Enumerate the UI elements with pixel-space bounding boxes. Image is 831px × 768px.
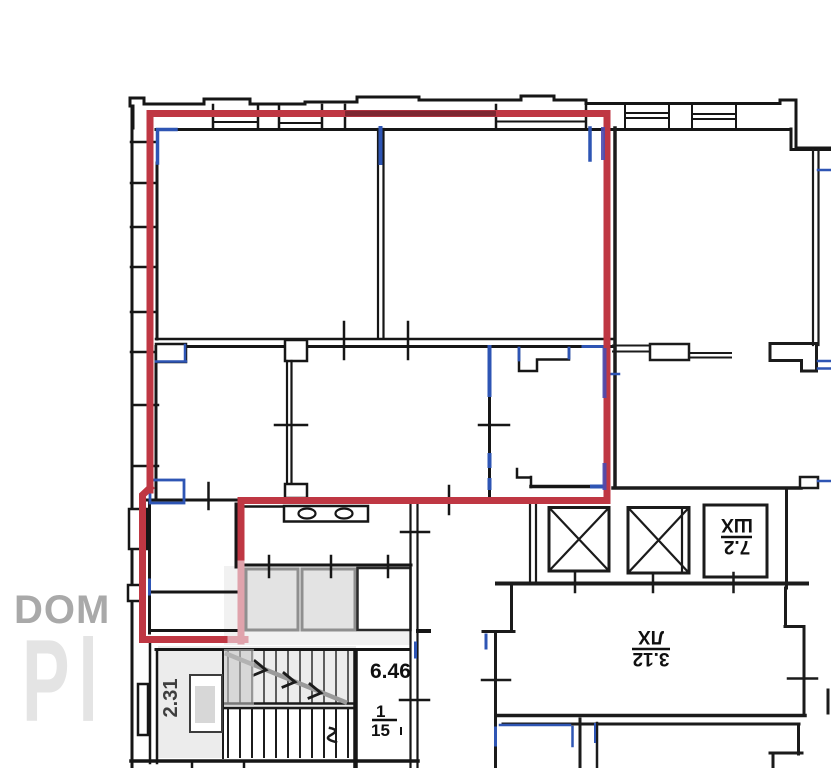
svg-text:ШХ: ШХ [721,514,753,535]
svg-text:6.46: 6.46 [370,660,411,683]
svg-text:2.31: 2.31 [160,679,182,718]
svg-text:1: 1 [376,702,385,721]
svg-text:Pl: Pl [22,615,107,747]
svg-text:15: 15 [371,721,390,740]
svg-text:3.12: 3.12 [633,648,670,669]
svg-text:ЛХ: ЛХ [638,626,664,647]
svg-text:DOM: DOM [14,588,110,632]
svg-text:7.2: 7.2 [724,536,750,557]
